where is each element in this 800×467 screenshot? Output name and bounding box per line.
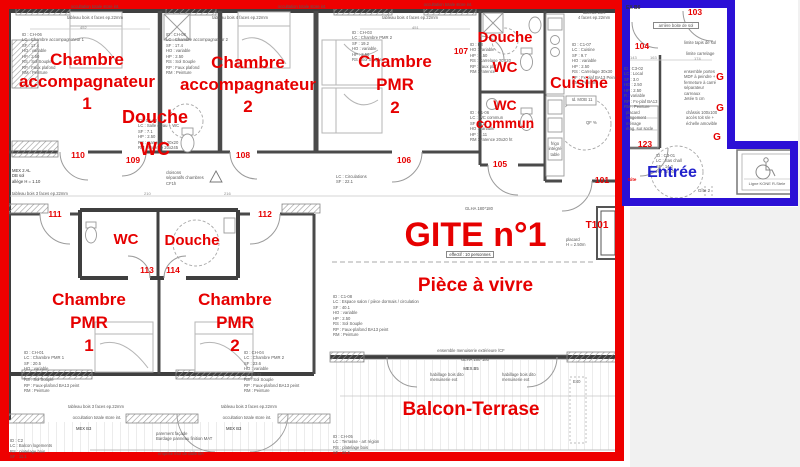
label-douche-114: Douche [152,231,232,251]
toilet-113 [86,222,97,243]
door-number-106: 106 [392,155,416,165]
label-chambre-pmr-2-haut: Chambre PMR 2 [342,51,448,120]
spec-balcon-gauche: ID : C2 LC : Balcon logements RS : plate… [10,438,54,460]
note-occultation-bas-2: occultation totale store int. [212,415,282,420]
note-idmob: Id. MOB 11 [566,97,598,102]
mark-g-1: G [708,72,732,83]
note-limite-tapis: limite tapis de sol [684,40,718,45]
door-number-104: 104 [630,41,654,51]
door-number-123: 123 [633,139,657,149]
door-number-108: 108 [231,150,255,160]
note-occultation-bas-1: occultation totale store int. [62,415,132,420]
label-gite-title: GITE n°1 [388,213,563,257]
note-mex2al: MEX 2 AL DB sol allège H = 1.10 [12,168,62,184]
spec-local: ID : C3-02 LC : Local SF : 3.0 HO : 2.50… [624,66,658,110]
note-arriere-boite: arrière boite de sol [653,22,699,29]
dim-163: 163 [650,55,657,60]
note-tableau4-2: tableau bois 4 faces ep.22mm [200,15,280,20]
elevator-box [737,150,797,194]
note-tableau4-1: tableau bois 4 faces ep.22mm [55,15,135,20]
door-number-103: 103 [683,7,707,17]
door-number-113: 113 [135,265,159,275]
note-occultation-top-2: occultation totale store int. [262,4,342,9]
note-exb6: EX B6 [626,5,640,12]
dim-216: 216 [224,191,231,196]
dim-174: 174 [694,56,701,61]
note-closet-123: placard rangement ménage étag. sur socle [626,110,658,132]
note-mexb5: MEX.B5 [454,366,488,371]
note-emprise: emprise mur de dalle BA [158,451,218,456]
note-limite-carrelage: limite carrelage [686,51,718,56]
note-placard-t101: placard H = 2.50m [566,237,596,248]
mark-gite: Gite [626,177,638,182]
note-habillage-1: habillage bois dito menuiserie ext [430,372,472,383]
note-e40: E40 [573,379,587,384]
label-piece-a-vivre: Pièce à vivre [398,274,553,299]
label-wc-113: WC [98,230,154,250]
dim-451: 451 [412,25,419,30]
note-parement: parement façade Bardage panneau finition… [156,431,222,442]
door-number-111: 111 [43,209,67,219]
note-tableau3-bas-1: tableau bois 3 faces ep.22mm [60,404,132,409]
note-glha-haut: GLHA 180*180 [450,206,508,211]
door-number-110: 110 [66,150,90,160]
note-frigo: frigo intégré table [544,141,566,157]
note-tableau4-4: tableau bois 4 faces ep.22mm [572,10,616,21]
note-tableau3-bas-2: tableau bois 3 faces ep.22mm [213,404,285,409]
door-number-114: 114 [161,265,185,275]
door-number-112: 112 [253,209,277,219]
note-tableau3-left: tableau bois 3 faces ep.22mm [12,191,72,196]
note-ensemble-menuiserie: ensemble menuiserie extérieure /CF [428,348,514,353]
door-number-105: 105 [488,159,512,169]
note-habillage-2: habillage bois dito menuiserie ext [502,372,544,383]
label-entree: Entrée [638,163,706,184]
spec-balcon: ID : CH-05 LC : Terrasse - art région RS… [333,434,385,456]
note-occultation-top-3: occultation totale store int. [408,2,488,7]
note-glha-bas: GLHA 180*180 [446,357,504,362]
note-kone: Ligne KONE R-Stele [742,181,792,186]
label-wc-commun: WC commun [466,97,544,132]
label-chambre-pmr-2-bas: Chambre PMR 2 [182,289,288,358]
door-number-107: 107 [449,46,473,56]
dim-143: 143 [630,55,637,60]
note-gite2: Gîte 2 [692,188,716,193]
warning-triangle-icon [210,171,222,182]
note-occultation-top-1: occultation totale store int. [60,4,130,9]
floor-plan-canvas: Chambre accompagnateur 1 Chambre accompa… [0,0,800,467]
mark-g-2: G [708,103,732,114]
door-number-101: 101 [590,175,614,185]
label-balcon-terrase: Balcon-Terrase [396,398,546,423]
label-chambre-pmr-1: Chambre PMR 1 [36,289,142,358]
note-tableau4-3: tableau bois 4 faces ep.22mm [370,15,450,20]
dim-452: 452 [80,25,87,30]
dim-210: 210 [144,191,151,196]
label-douche-wc-107: Douche WC [466,23,544,83]
note-mexb3-2: MEX B3 [226,426,256,431]
note-cloisons: cloisons séparatifs chambres CF1h [166,170,210,186]
label-cuisine: Cuisine [543,74,615,95]
door-number-109: 109 [121,155,145,165]
note-mexb3-1: MEX B3 [76,426,106,431]
spec-circulations: LC : Circulations SF : 22.1 [336,174,378,185]
mark-g-3: G [705,132,729,143]
note-qf: QF % [586,120,602,125]
label-t101: T101 [580,220,614,231]
spec-sejour: ID : C1-08 LC : Espace salon / pièce dor… [333,294,419,338]
